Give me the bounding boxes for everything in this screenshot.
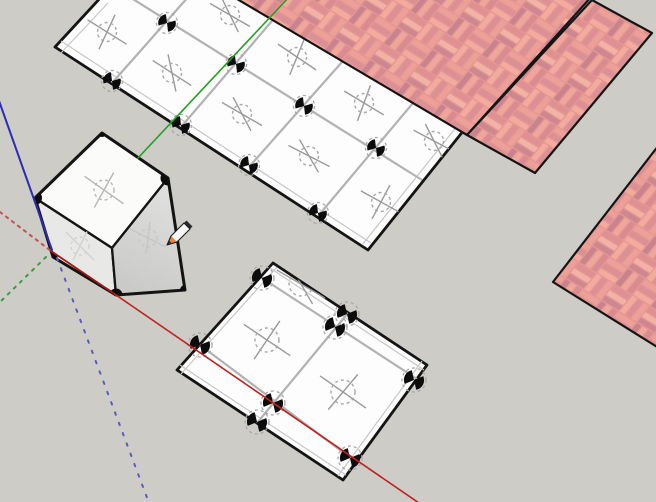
modeling-viewport[interactable] [0,0,656,502]
scene-canvas[interactable] [0,0,656,502]
